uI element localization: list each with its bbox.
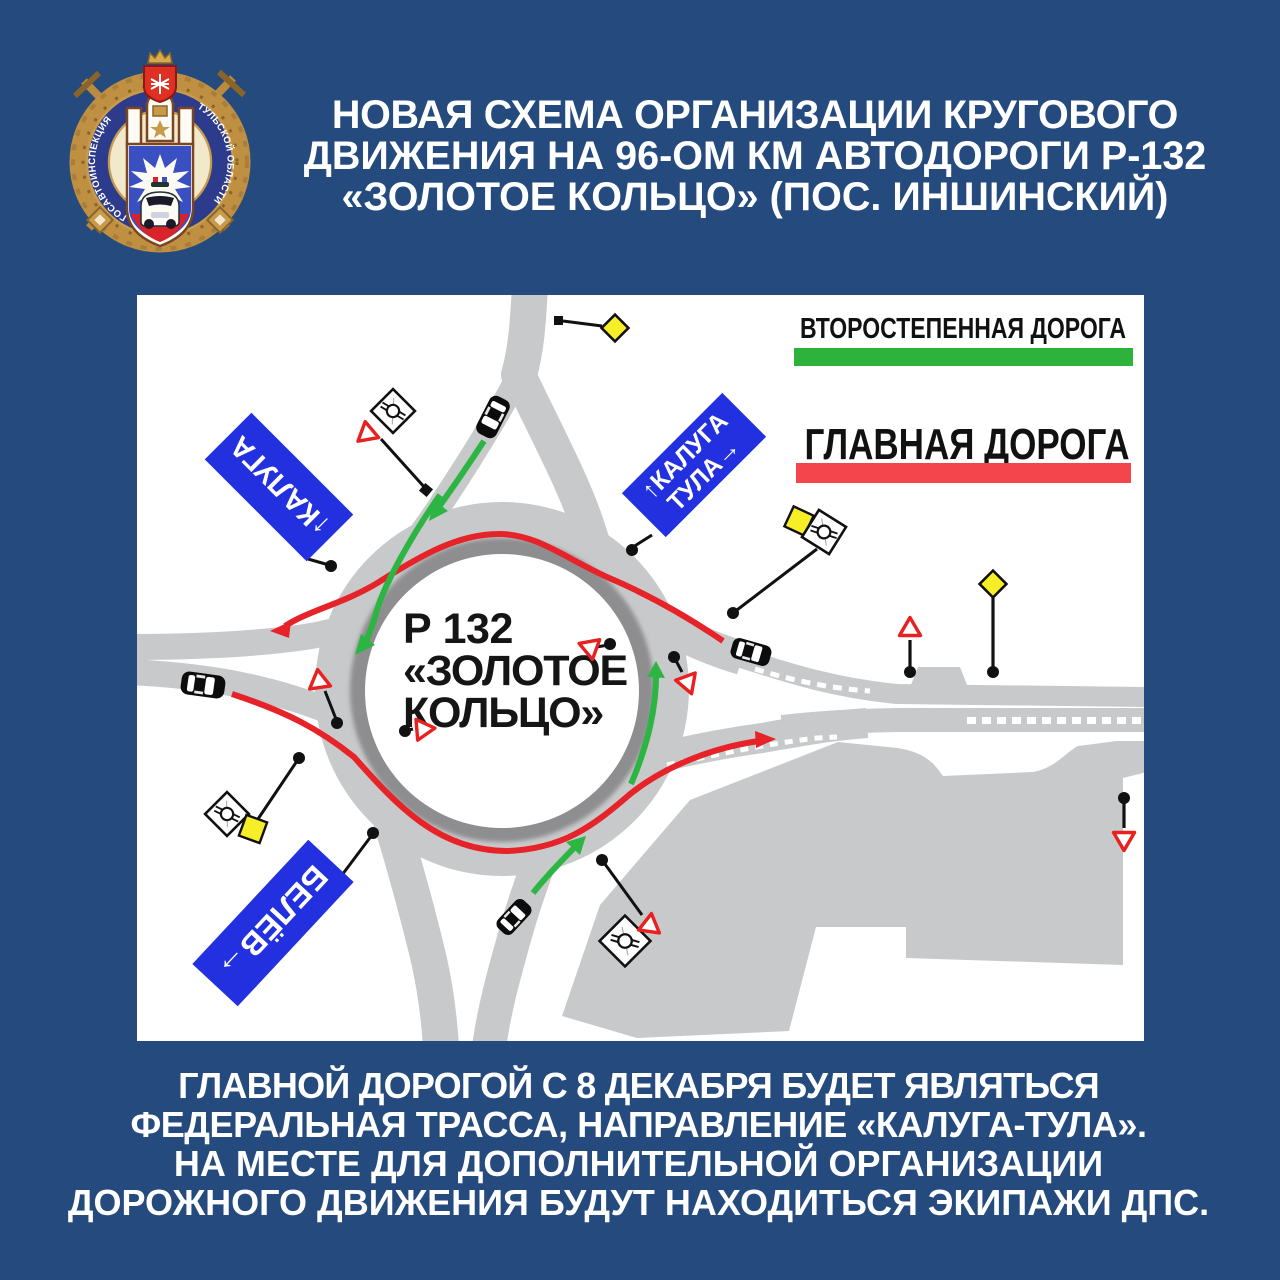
svg-text:Р 132: Р 132 (403, 605, 513, 653)
svg-text:ГЛАВНАЯ ДОРОГА: ГЛАВНАЯ ДОРОГА (805, 420, 1130, 469)
svg-text:ВТОРОСТЕПЕННАЯ ДОРОГА: ВТОРОСТЕПЕННАЯ ДОРОГА (800, 313, 1126, 345)
